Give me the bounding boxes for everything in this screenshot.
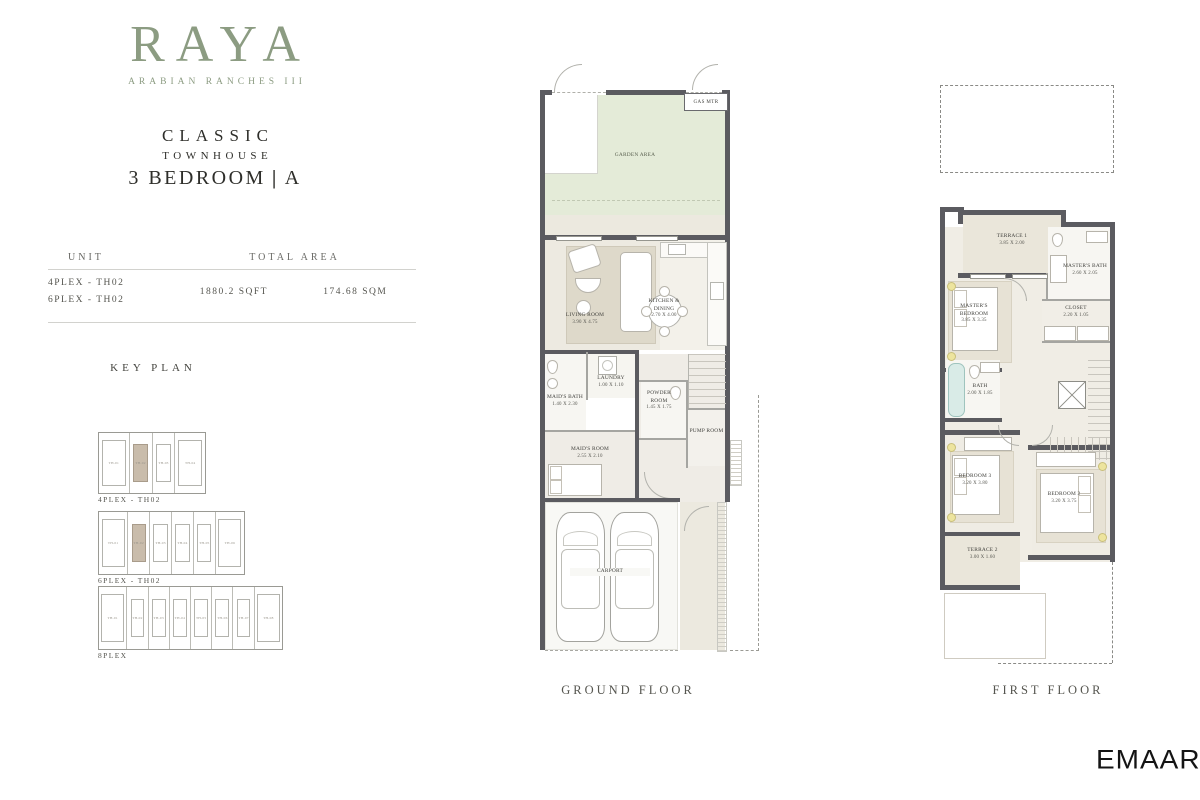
room-name: CLOSET [1042, 305, 1110, 313]
room-name: BEDROOM 2 [1040, 491, 1088, 499]
room-dims: 3.00 X 1.60 [945, 555, 1020, 562]
paved-strip [545, 215, 725, 235]
emaar-logo: EMAAR [1096, 745, 1200, 775]
vanity-sink [980, 362, 1000, 373]
room-dims: 3.85 X 3.35 [952, 318, 996, 325]
unit-outline: TH-05 [194, 599, 208, 637]
master-bedroom-label: MASTER'S BEDROOM3.85 X 3.35 [952, 303, 996, 325]
bedside-lamp [947, 443, 956, 452]
col-total-area: TOTAL AREA [173, 252, 416, 263]
key-plan-unit: TH-02 [127, 587, 148, 649]
maids-room-label: MAID'S ROOM2.55 X 2.10 [545, 446, 635, 460]
key-plan-unit-highlighted: TH-02 [130, 433, 153, 493]
unit-label: TH-05 [196, 616, 206, 620]
room-dims: 3.20 X 3.80 [954, 481, 996, 488]
key-plan-unit: TH-04 [172, 512, 194, 574]
unit-label: TH-04 [185, 461, 195, 465]
floorplan-brochure-page: RAYA ARABIAN RANCHES III CLASSIC TOWNHOU… [0, 0, 1200, 800]
partition-line [639, 380, 687, 382]
room-name: TERRACE 1 [963, 233, 1061, 241]
vanity-sink [1086, 231, 1108, 243]
garden-dashed-line [552, 200, 720, 201]
car-cabin [561, 549, 600, 609]
powder-label: POWDER ROOM1.45 X 1.75 [639, 390, 679, 412]
dining-chair [659, 326, 670, 337]
unit-label: TH-03 [158, 461, 168, 465]
unit-outline: TH-03 [156, 444, 171, 481]
unit-outline: TH-04 [175, 524, 189, 562]
key-plan-unit-highlighted: TH-02 [128, 512, 150, 574]
title-bedroom-variant: 3 BEDROOM|A [105, 167, 325, 190]
room-dims: 2.60 X 2.05 [1060, 271, 1110, 278]
plan-title: CLASSIC TOWNHOUSE 3 BEDROOM|A [105, 126, 325, 190]
title-classic: CLASSIC [105, 126, 325, 146]
area-table-body: 4PLEX - TH02 6PLEX - TH02 1880.2 SQFT 17… [48, 270, 416, 316]
pump-room [688, 410, 725, 466]
ground-floor-label: GROUND FLOOR [553, 683, 703, 698]
unit-outline: TH-02 [133, 444, 148, 481]
carport-label: CARPORT [570, 568, 650, 576]
gas-meter-label: GAS MTR [694, 100, 719, 105]
room-name: MASTER'S BEDROOM [952, 303, 996, 318]
bedside-lamp [947, 513, 956, 522]
wall-segment [1028, 555, 1115, 560]
room-dims: 2.00 X 1.85 [962, 391, 998, 398]
unit-outline: TH-07 [237, 599, 251, 637]
unit-label: TH-04 [175, 616, 185, 620]
room-dims: 1.45 X 1.75 [639, 405, 679, 412]
unit-outline: TH-04 [178, 440, 202, 487]
key-plan-unit: TH-08 [255, 587, 282, 649]
room-name: KITCHEN & DINING [640, 298, 688, 313]
car-cabin [615, 549, 654, 609]
room-name: POWDER ROOM [639, 390, 679, 405]
unit-outline: TH-02 [132, 524, 146, 562]
pillow [550, 466, 562, 480]
window [970, 274, 1006, 279]
window [1012, 274, 1048, 279]
room-name: LAUNDRY [584, 375, 638, 383]
wardrobe [1036, 452, 1096, 467]
unit-label: TH-01 [108, 541, 118, 545]
unit-outline: TH-02 [131, 599, 145, 637]
key-plan-unit: TH-04 [175, 433, 205, 493]
room-name: BATH [962, 383, 998, 391]
unit-outline: TH-08 [257, 594, 279, 642]
room-name: MAID'S BATH [542, 394, 588, 402]
car [610, 512, 659, 642]
key-plan-8plex-label: 8PLEX [98, 651, 128, 660]
sink [547, 378, 558, 389]
garden-patio [545, 95, 598, 174]
master-bath-label: MASTER'S BATH2.60 X 2.05 [1060, 263, 1110, 277]
key-plan-unit: TH-03 [150, 512, 172, 574]
window [636, 236, 678, 241]
pillow [550, 480, 562, 494]
gate-door-arc [692, 64, 718, 90]
window [556, 236, 602, 241]
unit-label: TH-04 [177, 541, 187, 545]
room-name: GARDEN AREA [545, 152, 725, 160]
wardrobe [1044, 326, 1076, 341]
first-floor-plan: TERRACE 13.85 X 2.00 MASTER'S BEDROOM3.8… [938, 85, 1120, 670]
room-name: MAID'S ROOM [545, 446, 635, 454]
bath-label: BATH2.00 X 1.85 [962, 383, 998, 397]
unit-label: TH-02 [132, 616, 142, 620]
open-area-dashed [940, 85, 1114, 173]
unit-outline: TH-01 [102, 519, 125, 567]
maids-bath-label: MAID'S BATH1.40 X 2.30 [542, 394, 588, 408]
room-name: TERRACE 2 [945, 547, 1020, 555]
key-plan-8plex: TH-01 TH-02 TH-03 TH-04 TH-05 TH-06 TH-0… [98, 586, 283, 650]
unit-label: TH-03 [153, 616, 163, 620]
kitchen-label: KITCHEN & DINING2.70 X 4.00 [640, 298, 688, 320]
laundry-label: LAUNDRY1.00 X 1.10 [584, 375, 638, 389]
key-plan-4plex-label: 4PLEX - TH02 [98, 495, 161, 504]
bedroom3-label: BEDROOM 33.20 X 3.80 [954, 473, 996, 487]
gas-meter-box: GAS MTR [684, 93, 728, 111]
partition-line [639, 438, 687, 440]
room-name: CARPORT [570, 568, 650, 576]
area-sqft: 1880.2 SQFT [173, 287, 294, 297]
area-table: UNIT TOTAL AREA 4PLEX - TH02 6PLEX - TH0… [48, 252, 416, 323]
garden-label: GARDEN AREA [545, 152, 725, 160]
wardrobe [1077, 326, 1109, 341]
wall-segment [1110, 222, 1115, 562]
car-windshield [617, 531, 652, 546]
unit-cell: 4PLEX - TH02 6PLEX - TH02 [48, 275, 173, 309]
partition-line [688, 408, 725, 410]
room-dims: 2.55 X 2.10 [545, 454, 635, 461]
title-divider: | [266, 167, 285, 189]
pump-label: PUMP ROOM [688, 428, 725, 436]
key-plan-unit: TH-03 [149, 587, 170, 649]
living-room-label: LIVING ROOM3.90 X 4.75 [545, 312, 625, 326]
unit-label: TH-03 [155, 541, 165, 545]
open-area-dashed-edge [1112, 562, 1113, 663]
first-floor-label: FIRST FLOOR [973, 683, 1123, 698]
unit-label: TH-07 [238, 616, 248, 620]
partition-line [1042, 341, 1110, 343]
unit-outline: TH-03 [152, 599, 166, 637]
entry-path [730, 395, 759, 651]
total-area-cell: 1880.2 SQFT 174.68 SQM [173, 287, 416, 297]
area-table-header: UNIT TOTAL AREA [48, 252, 416, 263]
room-dims: 3.85 X 2.00 [963, 241, 1061, 248]
bedroom2-label: BEDROOM 23.20 X 3.75 [1040, 491, 1088, 505]
key-plan-unit: TH-01 [99, 433, 130, 493]
key-plan-unit: TH-06 [212, 587, 233, 649]
wall-segment [940, 585, 1020, 590]
unit-label: TH-05 [199, 541, 209, 545]
key-plan-unit: TH-07 [233, 587, 254, 649]
unit-outline: TH-01 [102, 440, 126, 487]
unit-label: TH-01 [107, 616, 117, 620]
side-hatch [717, 502, 727, 652]
table-rule-bottom [48, 322, 416, 323]
gate-opening [552, 92, 606, 93]
ground-floor-plan: GARDEN AREA GAS MTR LIVING ROOM3.90 X 4.… [540, 60, 762, 675]
dining-chair [659, 286, 670, 297]
unit-outline: TH-04 [173, 599, 187, 637]
unit-outline: TH-06 [218, 519, 241, 567]
bedside-lamp [1098, 533, 1107, 542]
key-plan-title: KEY PLAN [98, 362, 208, 374]
car-windshield [563, 531, 598, 546]
room-name: BEDROOM 3 [954, 473, 996, 481]
car [556, 512, 605, 642]
open-area-dashed-edge [998, 663, 1112, 664]
shaft [1058, 381, 1086, 409]
room-name: PUMP ROOM [688, 428, 725, 436]
unit-outline: TH-05 [197, 524, 211, 562]
raya-logo-wordmark: RAYA [105, 16, 325, 73]
key-plan-unit: TH-01 [99, 512, 128, 574]
unit-row: 6PLEX - TH02 [48, 292, 173, 309]
room-dims: 2.20 X 1.05 [1042, 313, 1110, 320]
unit-outline: TH-03 [153, 524, 167, 562]
room-dims: 2.70 X 4.00 [640, 313, 688, 320]
unit-label: TH-08 [263, 616, 273, 620]
room-dims: 1.00 X 1.10 [584, 383, 638, 390]
entry-steps [730, 440, 742, 486]
stove [710, 282, 724, 300]
raya-logo: RAYA ARABIAN RANCHES III [105, 16, 325, 87]
key-plan-unit: TH-04 [170, 587, 191, 649]
unit-label: TH-01 [109, 461, 119, 465]
raya-logo-subtitle: ARABIAN RANCHES III [105, 77, 325, 87]
title-variant: A [285, 167, 302, 189]
bedside-lamp [1098, 462, 1107, 471]
area-sqm: 174.68 SQM [295, 287, 416, 297]
unit-label: TH-06 [225, 541, 235, 545]
roof-outline [944, 593, 1046, 659]
key-plan-unit: TH-06 [216, 512, 244, 574]
key-plan-unit: TH-05 [194, 512, 216, 574]
title-townhouse: TOWNHOUSE [105, 150, 325, 162]
bedside-lamp [947, 282, 956, 291]
key-plan-6plex: TH-01 TH-02 TH-03 TH-04 TH-05 TH-06 [98, 511, 245, 575]
terrace1-label: TERRACE 13.85 X 2.00 [963, 233, 1061, 247]
washer-drum [602, 360, 613, 371]
key-plan-unit: TH-01 [99, 587, 127, 649]
room-dims: 3.20 X 3.75 [1040, 499, 1088, 506]
closet-label: CLOSET2.20 X 1.05 [1042, 305, 1110, 319]
room-name: LIVING ROOM [545, 312, 625, 320]
key-plan-4plex: TH-01 TH-02 TH-03 TH-04 [98, 432, 206, 494]
bedside-lamp [947, 352, 956, 361]
unit-outline: TH-01 [101, 594, 123, 642]
unit-row: 4PLEX - TH02 [48, 275, 173, 292]
unit-label: TH-02 [133, 541, 143, 545]
carport-open-edge [545, 650, 678, 651]
unit-outline: TH-06 [215, 599, 229, 637]
title-bedroom: 3 BEDROOM [128, 167, 266, 189]
key-plan-unit: TH-05 [191, 587, 212, 649]
key-plan-unit: TH-03 [153, 433, 176, 493]
gate-door-arc [554, 64, 582, 92]
col-unit: UNIT [48, 252, 173, 263]
unit-label: TH-06 [217, 616, 227, 620]
room-dims: 1.40 X 2.30 [542, 402, 588, 409]
kitchen-sink [668, 244, 686, 255]
staircase [688, 354, 726, 408]
wall-segment [940, 418, 1002, 422]
terrace2-label: TERRACE 23.00 X 1.60 [945, 547, 1020, 561]
room-dims: 3.90 X 4.75 [545, 320, 625, 327]
unit-label: TH-02 [135, 461, 145, 465]
room-name: MASTER'S BATH [1060, 263, 1110, 271]
key-plan-6plex-label: 6PLEX - TH02 [98, 576, 161, 585]
